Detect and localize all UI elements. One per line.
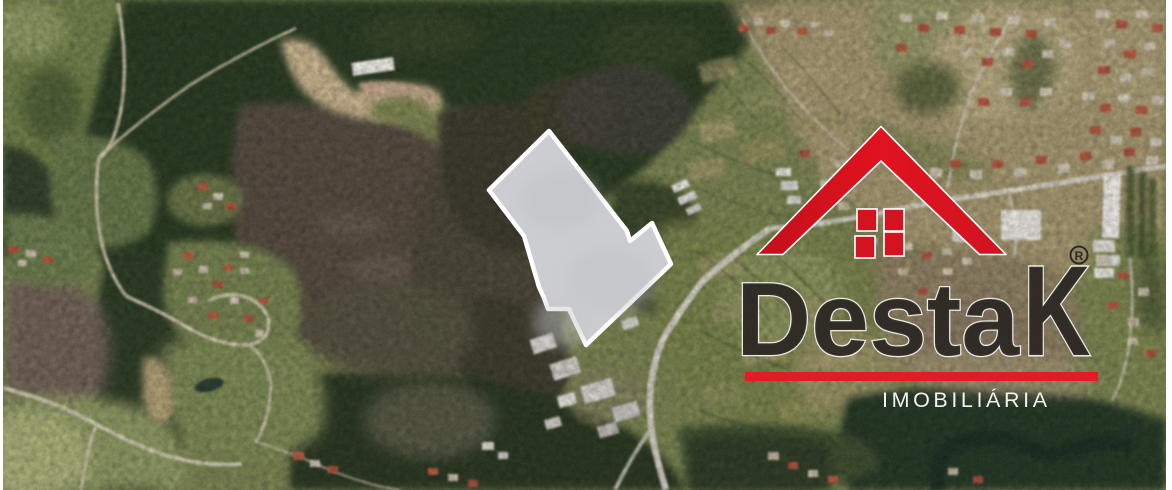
svg-text:Desta: Desta [736,262,1020,378]
svg-text:K: K [1023,240,1090,383]
svg-text:IMOBILIÁRIA: IMOBILIÁRIA [882,387,1051,412]
